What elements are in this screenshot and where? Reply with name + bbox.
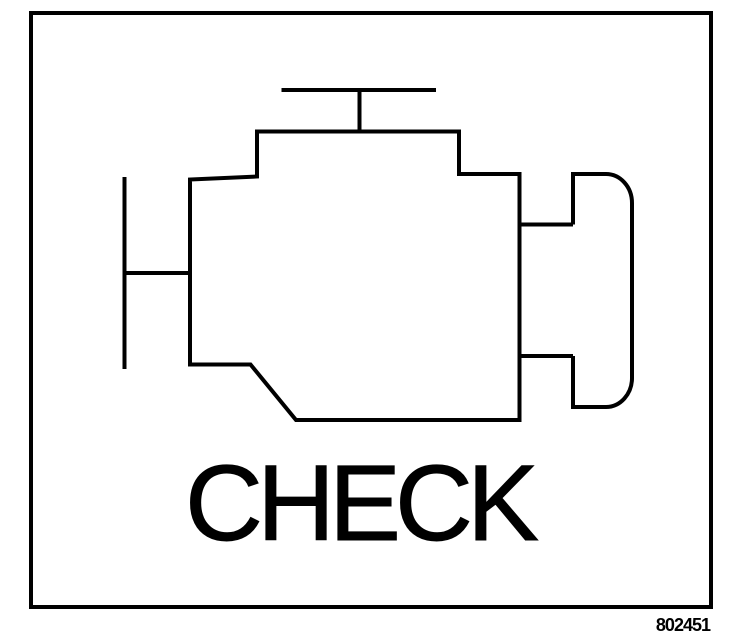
svg-text:CHECK: CHECK xyxy=(185,442,538,563)
svg-text:802451: 802451 xyxy=(656,615,711,635)
